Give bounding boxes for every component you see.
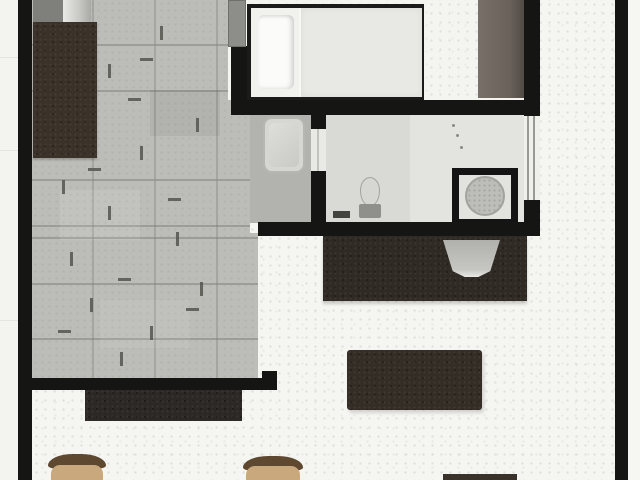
bed-blanket [299, 8, 422, 97]
faucet-mark [456, 134, 459, 137]
toilet-tank [359, 204, 381, 218]
double-bed [247, 4, 424, 101]
sideboard [85, 389, 242, 421]
toilet-bowl [360, 177, 380, 206]
faucet-mark [460, 146, 463, 149]
bedroom-wardrobe [478, 0, 526, 98]
hall-wardrobe [33, 22, 97, 158]
floor-plan [0, 0, 640, 480]
chair-seat [51, 465, 103, 480]
toilet [358, 176, 382, 222]
wall-exterior-left [18, 0, 32, 480]
outside-left [0, 0, 18, 480]
shower-tray [465, 176, 505, 216]
washing-machine [263, 117, 305, 173]
hall-appliance-right [63, 0, 91, 22]
wall-bedroom-right [524, 0, 540, 116]
dining-table [347, 350, 482, 410]
hallway-tile-floor [32, 233, 258, 380]
partial-furniture [443, 474, 517, 480]
bath-mat [333, 211, 350, 218]
faucet-mark [452, 124, 455, 127]
wall-bedroom-bottom [231, 100, 540, 115]
hall-appliance-left [33, 0, 63, 22]
wall-niche-bathroom-upper [311, 115, 326, 129]
bedroom-door-leaf [228, 0, 246, 47]
shower-cabin [452, 168, 518, 224]
wall-corner-post [262, 371, 277, 390]
wall-exterior-right [615, 0, 628, 480]
wall-niche-bathroom-lower [311, 171, 326, 222]
wall-hallway-bottom [18, 378, 277, 390]
pillow [258, 15, 294, 89]
wall-bathroom-bottom [258, 222, 540, 236]
chair-seat [246, 466, 300, 480]
bathroom-inner-door-opening [311, 129, 326, 171]
bathroom-door-window [524, 116, 540, 200]
